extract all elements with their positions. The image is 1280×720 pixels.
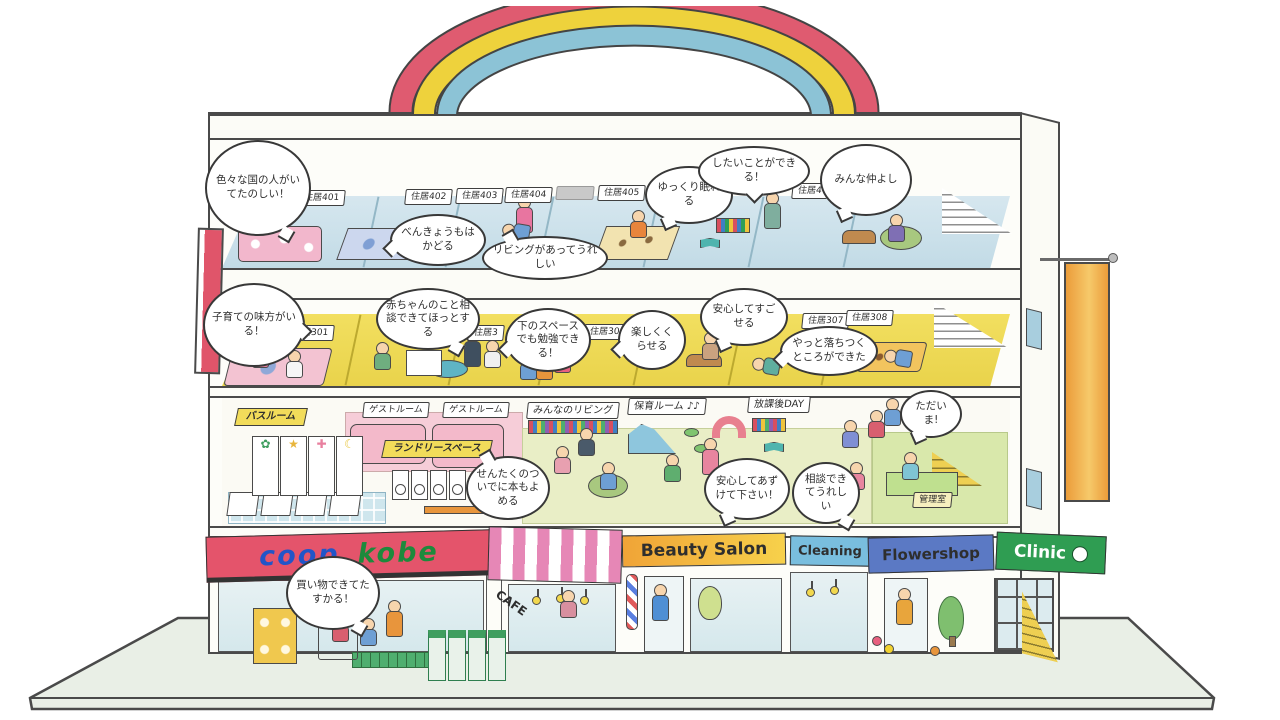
shower-symbol: ✚ (316, 437, 326, 451)
kitchenette (406, 350, 442, 376)
speech-bubble: 赤ちゃんのこと相談できてほっとする (376, 288, 480, 350)
pendant-lamp (580, 596, 589, 605)
shower-symbol: ✿ (260, 437, 270, 451)
washing-machine (430, 470, 447, 500)
person-figure (882, 398, 902, 426)
illustration-canvas: 住居401 住居402 住居403 住居404 住居405 住居4 色々な国の人… (0, 0, 1280, 720)
kobe-sign-text: kobe (357, 536, 439, 569)
person-figure (576, 428, 596, 456)
person-figure (662, 454, 682, 482)
roof-slab (210, 114, 1020, 140)
area-label-bathroom: バスルーム (234, 408, 308, 426)
speech-bubble: 楽しくくらせる (618, 310, 686, 370)
area-label-office: 管理室 (912, 492, 953, 508)
flowershop-text: Flowershop (882, 544, 980, 565)
bookshelf (528, 420, 618, 434)
slab-f3-f2 (210, 386, 1020, 398)
area-label-nursery: 保育ルーム ♪♪ (627, 398, 706, 415)
person-figure (886, 214, 906, 242)
speech-bubble: 買い物できてたすかる！ (286, 556, 380, 630)
person-figure (384, 600, 404, 637)
speech-bubble: ただいま! (900, 390, 962, 438)
clinic-doodle-icon (1072, 546, 1089, 563)
speech-bubble: みんな仲よし (820, 144, 912, 216)
area-label-afterschool: 放課後DAY (747, 396, 810, 413)
bookshelf (752, 418, 786, 432)
pendant-lamp (830, 586, 839, 595)
area-label-guestroom-2: ゲストルーム (442, 402, 509, 418)
right-wall-window (1026, 308, 1042, 350)
speech-bubble: 下のスペースでも勉強できる！ (505, 308, 591, 372)
books-row (716, 218, 750, 233)
beauty-salon-sign: Beauty Salon (622, 533, 787, 568)
room-label-403: 住居403 (455, 188, 504, 204)
flowershop-tree (938, 596, 964, 640)
room-label-402: 住居402 (404, 189, 453, 205)
person-figure (482, 340, 502, 368)
shower-symbol: ☾ (344, 437, 355, 451)
area-label-laundry: ランドリースペース (381, 440, 493, 458)
speech-bubble: 安心してすごせる (700, 288, 788, 346)
beauty-salon-text: Beauty Salon (641, 539, 768, 561)
room-label-404: 住居404 (504, 187, 553, 203)
person-figure (558, 590, 578, 618)
person-figure (598, 462, 618, 490)
shower-stall: ☾ (336, 436, 363, 496)
flower-pot (872, 636, 882, 646)
room-label-308: 住居308 (845, 310, 894, 326)
person-figure (894, 588, 914, 625)
speech-bubble: やっと落ちつくところができた (780, 326, 878, 376)
person-figure (900, 452, 920, 480)
shower-stall: ★ (280, 436, 307, 496)
low-table (842, 230, 876, 244)
shower-symbol: ★ (288, 437, 299, 451)
washing-machine (411, 470, 428, 500)
right-orange-banner (1064, 262, 1110, 502)
barber-pole (626, 574, 638, 630)
speech-bubble: べんきょうもはかどる (390, 214, 486, 266)
person-figure (628, 210, 648, 238)
speech-bubble: リビングがあってうれしい (482, 236, 608, 280)
person-figure (650, 584, 670, 621)
entrance-mat (352, 652, 430, 668)
slab-f4-f3 (210, 268, 1020, 300)
speech-bubble: 相談できてうれしい (792, 462, 860, 524)
banner-pole (1040, 258, 1112, 261)
person-figure (840, 420, 860, 448)
play-stool (684, 428, 699, 437)
area-label-guestroom-1: ゲストルーム (362, 402, 429, 418)
flowershop-sign: Flowershop (868, 534, 995, 573)
room-label-405: 住居405 (597, 185, 646, 201)
washing-machine (392, 470, 409, 500)
cleaning-text: Cleaning (798, 543, 862, 559)
clinic-sign: Clinic (995, 532, 1107, 575)
shower-stall: ✚ (308, 436, 335, 496)
rainbow-handle (385, 6, 885, 116)
right-wall-window (1026, 468, 1042, 510)
person-figure (372, 342, 392, 370)
room-label-redacted (555, 186, 594, 200)
speech-bubble: せんたくのついでに本もよめる (466, 456, 550, 520)
speech-bubble: したいことができる！ (698, 146, 810, 196)
speech-bubble: 安心してあずけて下さい！ (704, 458, 790, 520)
stacked-crates (253, 608, 297, 664)
recycle-bins (428, 630, 506, 681)
speech-bubble: 色々な国の人がいてたのしい！ (205, 140, 311, 236)
plant (698, 586, 722, 620)
flower-pot (884, 644, 894, 654)
person-figure (552, 446, 572, 474)
pendant-lamp (532, 596, 541, 605)
washing-machine (449, 470, 466, 500)
flower-pot (930, 646, 940, 656)
shower-stall: ✿ (252, 436, 279, 496)
speech-bubble: 子育ての味方がいる！ (203, 283, 305, 367)
person-figure (762, 192, 782, 229)
cleaning-storefront-glass (790, 572, 868, 652)
area-label-living: みんなのリビング (526, 402, 620, 419)
pendant-lamp (806, 588, 815, 597)
cleaning-sign: Cleaning (790, 535, 871, 566)
clinic-text: Clinic (1014, 541, 1067, 563)
cafe-awning (487, 526, 622, 583)
